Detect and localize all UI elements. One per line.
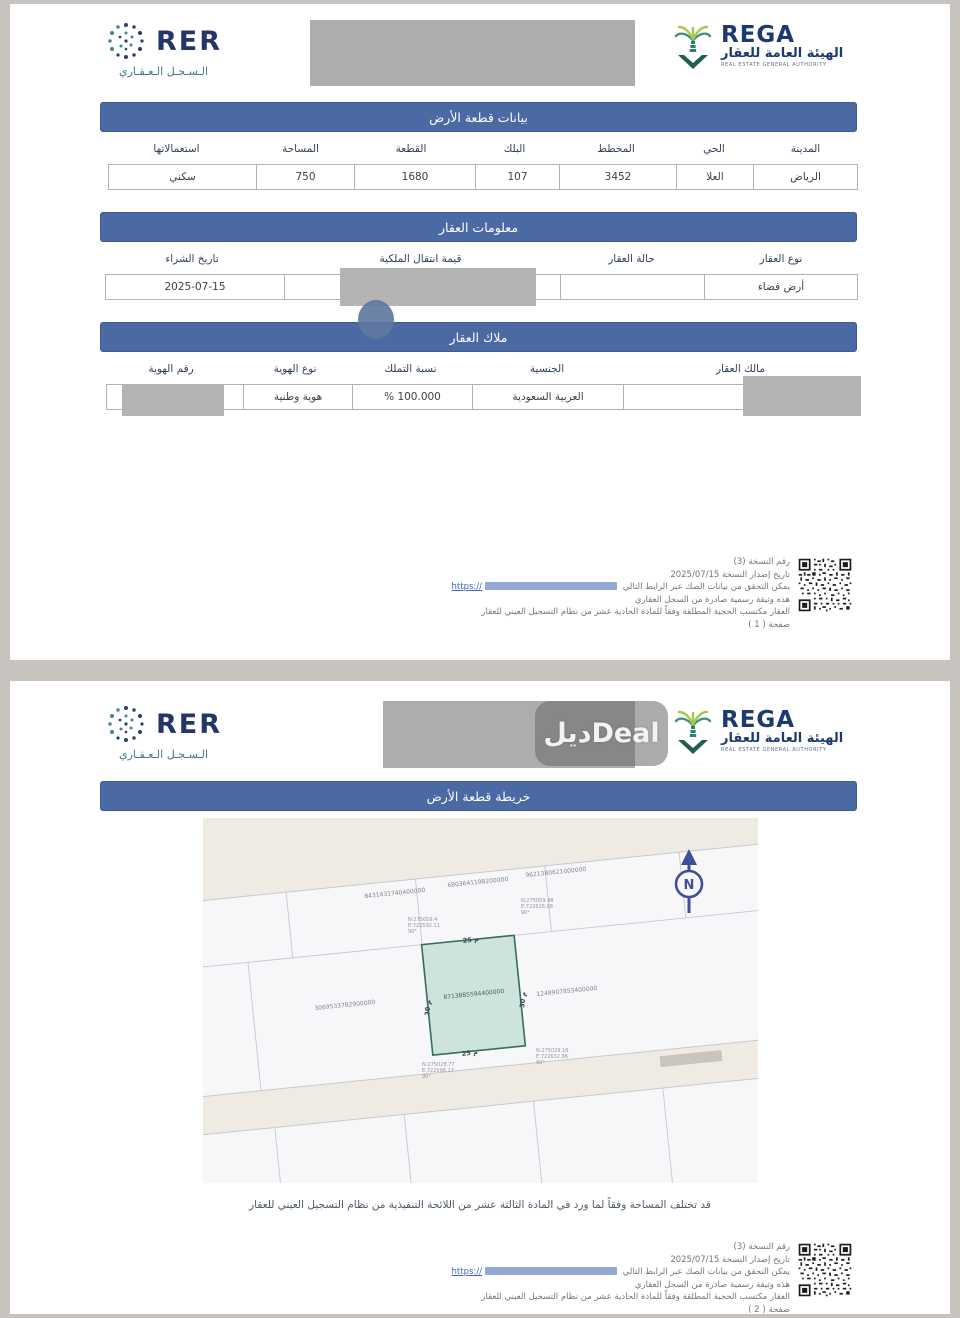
rega-palm-icon <box>672 709 714 755</box>
corner-coord: 90° <box>521 910 530 916</box>
page-number: صفحة ( 1 ) <box>370 619 790 632</box>
cell-block: 107 <box>475 164 560 190</box>
corner-coord: 90° <box>536 1060 545 1066</box>
col-header: نسبة التملك <box>350 357 471 381</box>
deed-page-2: RER الـسـجـل الـعـقـاري ديلDeal <box>10 681 950 1314</box>
rega-arabic-name: الهيئة العامة للعقار <box>721 731 843 747</box>
stamp-blob <box>358 300 394 339</box>
col-header: تاريخ الشراء <box>102 247 282 271</box>
rega-tagline: REAL ESTATE GENERAL AUTHORITY <box>721 62 827 68</box>
redacted-link-box <box>485 582 617 590</box>
link-text[interactable]: https:// <box>452 1267 482 1277</box>
col-header: حالة العقار <box>559 247 704 271</box>
rer-flower-icon <box>105 20 147 62</box>
rer-wordmark: RER <box>156 709 222 740</box>
north-label: N <box>684 878 695 893</box>
deal-watermark: ديلDeal <box>535 701 668 766</box>
col-header: المخطط <box>557 137 675 161</box>
col-header: البلك <box>472 137 557 161</box>
cell-nationality: العربية السعودية <box>472 384 624 410</box>
col-header: الجنسية <box>471 357 623 381</box>
cell-purchase-date: 2025-07-15 <box>105 274 285 300</box>
rega-arabic-name: الهيئة العامة للعقار <box>721 46 843 62</box>
edge-length-left: 30 م <box>423 999 433 1016</box>
section-title-map: خريطة قطعة الأرض <box>100 781 857 811</box>
land-data-header-row: المدينة الحي المخطط البلك القطعة المساحة… <box>102 137 858 161</box>
watermark-text: ديلDeal <box>543 718 659 749</box>
verification-link[interactable]: https:// <box>452 582 620 592</box>
issue-date-line: تاريخ إصدار النسخة 2025/07/15 <box>370 569 790 582</box>
official-doc-line: هذه وثيقة رسمية صادرة من السجل العقاري <box>370 1279 790 1292</box>
section-title-land-data: بيانات قطعة الأرض <box>100 102 857 132</box>
rer-logo: RER الـسـجـل الـعـقـاري <box>105 20 222 78</box>
col-header: رقم الهوية <box>102 357 240 381</box>
rer-arabic-name: الـسـجـل الـعـقـاري <box>119 65 208 78</box>
cell-district: العلا <box>676 164 754 190</box>
cell-parcel: 1680 <box>354 164 476 190</box>
rega-logo: REGA الهيئة العامة للعقار REAL ESTATE GE… <box>672 24 843 70</box>
cell-area: 750 <box>256 164 355 190</box>
ownership-percent: % 100.000 <box>384 391 441 403</box>
verify-text: يمكن التحقق من بيانات الصك عبر الرابط ال… <box>623 1267 790 1277</box>
col-header: نوع العقار <box>704 247 858 271</box>
rega-wordmark: REGA <box>721 24 795 46</box>
section-title-owners: ملاك العقار <box>100 322 857 352</box>
qr-code <box>797 556 853 614</box>
land-plot-map: 8431431740400000 6803641198200000 962138… <box>203 818 758 1183</box>
verify-line: يمكن التحقق من بيانات الصك عبر الرابط ال… <box>370 581 790 594</box>
col-header: المساحة <box>251 137 350 161</box>
rer-arabic-name: الـسـجـل الـعـقـاري <box>119 748 208 761</box>
copy-number-line: رقم النسخة (3) <box>370 556 790 569</box>
cell-plan: 3452 <box>559 164 677 190</box>
scanned-document: RER الـسـجـل الـعـقـاري <box>0 0 960 1318</box>
legal-line: العقار مكتسب الحجية المطلقة وفقاً للمادة… <box>370 1291 790 1304</box>
rega-logo: REGA الهيئة العامة للعقار REAL ESTATE GE… <box>672 709 843 755</box>
link-text[interactable]: https:// <box>452 582 482 592</box>
cell-ownership-percent: % 100.000 <box>352 384 473 410</box>
edge-length-top: 25 م <box>462 935 479 945</box>
redacted-id-number-box <box>122 385 224 416</box>
rer-flower-icon <box>105 703 147 745</box>
purchase-date: 2025-07-15 <box>164 281 225 293</box>
verify-line: يمكن التحقق من بيانات الصك عبر الرابط ال… <box>370 1266 790 1279</box>
qr-code <box>797 1241 853 1299</box>
redacted-header-box <box>310 20 635 86</box>
cell-usage: سكني <box>108 164 257 190</box>
land-data-value-row: الرياض العلا 3452 107 1680 750 سكني <box>102 164 858 190</box>
rer-logo: RER الـسـجـل الـعـقـاري <box>105 703 222 761</box>
col-header: نوع الهوية <box>240 357 350 381</box>
edge-length-bottom: 25 م <box>461 1048 478 1058</box>
road-marking <box>660 1050 723 1067</box>
rega-tagline: REAL ESTATE GENERAL AUTHORITY <box>721 747 827 753</box>
cell-property-status <box>560 274 705 300</box>
cell-property-type: أرض فضاء <box>704 274 858 300</box>
col-header: المدينة <box>753 137 858 161</box>
area-disclaimer: قد تختلف المساحة وفقاً لما ورد في المادة… <box>10 1199 950 1211</box>
section-title-property-info: معلومات العقار <box>100 212 857 242</box>
redacted-owner-name-box <box>743 376 861 416</box>
rer-wordmark: RER <box>156 26 222 57</box>
col-header: القطعة <box>350 137 472 161</box>
rega-wordmark: REGA <box>721 709 795 731</box>
verification-link[interactable]: https:// <box>452 1267 620 1277</box>
page-number: صفحة ( 2 ) <box>370 1304 790 1315</box>
col-header: الحي <box>675 137 753 161</box>
issue-date-line: تاريخ إصدار النسخة 2025/07/15 <box>370 1254 790 1267</box>
redacted-link-box <box>485 1267 617 1275</box>
corner-coord: 90° <box>408 929 417 935</box>
footer-text-block: رقم النسخة (3) تاريخ إصدار النسخة 2025/0… <box>370 1241 790 1314</box>
cell-city: الرياض <box>753 164 858 190</box>
rega-palm-icon <box>672 24 714 70</box>
col-header: استعمالاتها <box>102 137 251 161</box>
edge-length-right: 30 م <box>518 991 528 1008</box>
cell-id-type: هوية وطنية <box>243 384 353 410</box>
official-doc-line: هذه وثيقة رسمية صادرة من السجل العقاري <box>370 594 790 607</box>
corner-coord: 90° <box>422 1074 431 1080</box>
copy-number-line: رقم النسخة (3) <box>370 1241 790 1254</box>
verify-text: يمكن التحقق من بيانات الصك عبر الرابط ال… <box>623 582 790 592</box>
deed-page-1: RER الـسـجـل الـعـقـاري <box>10 4 950 660</box>
legal-line: العقار مكتسب الحجية المطلقة وفقاً للمادة… <box>370 606 790 619</box>
footer-text-block: رقم النسخة (3) تاريخ إصدار النسخة 2025/0… <box>370 556 790 631</box>
